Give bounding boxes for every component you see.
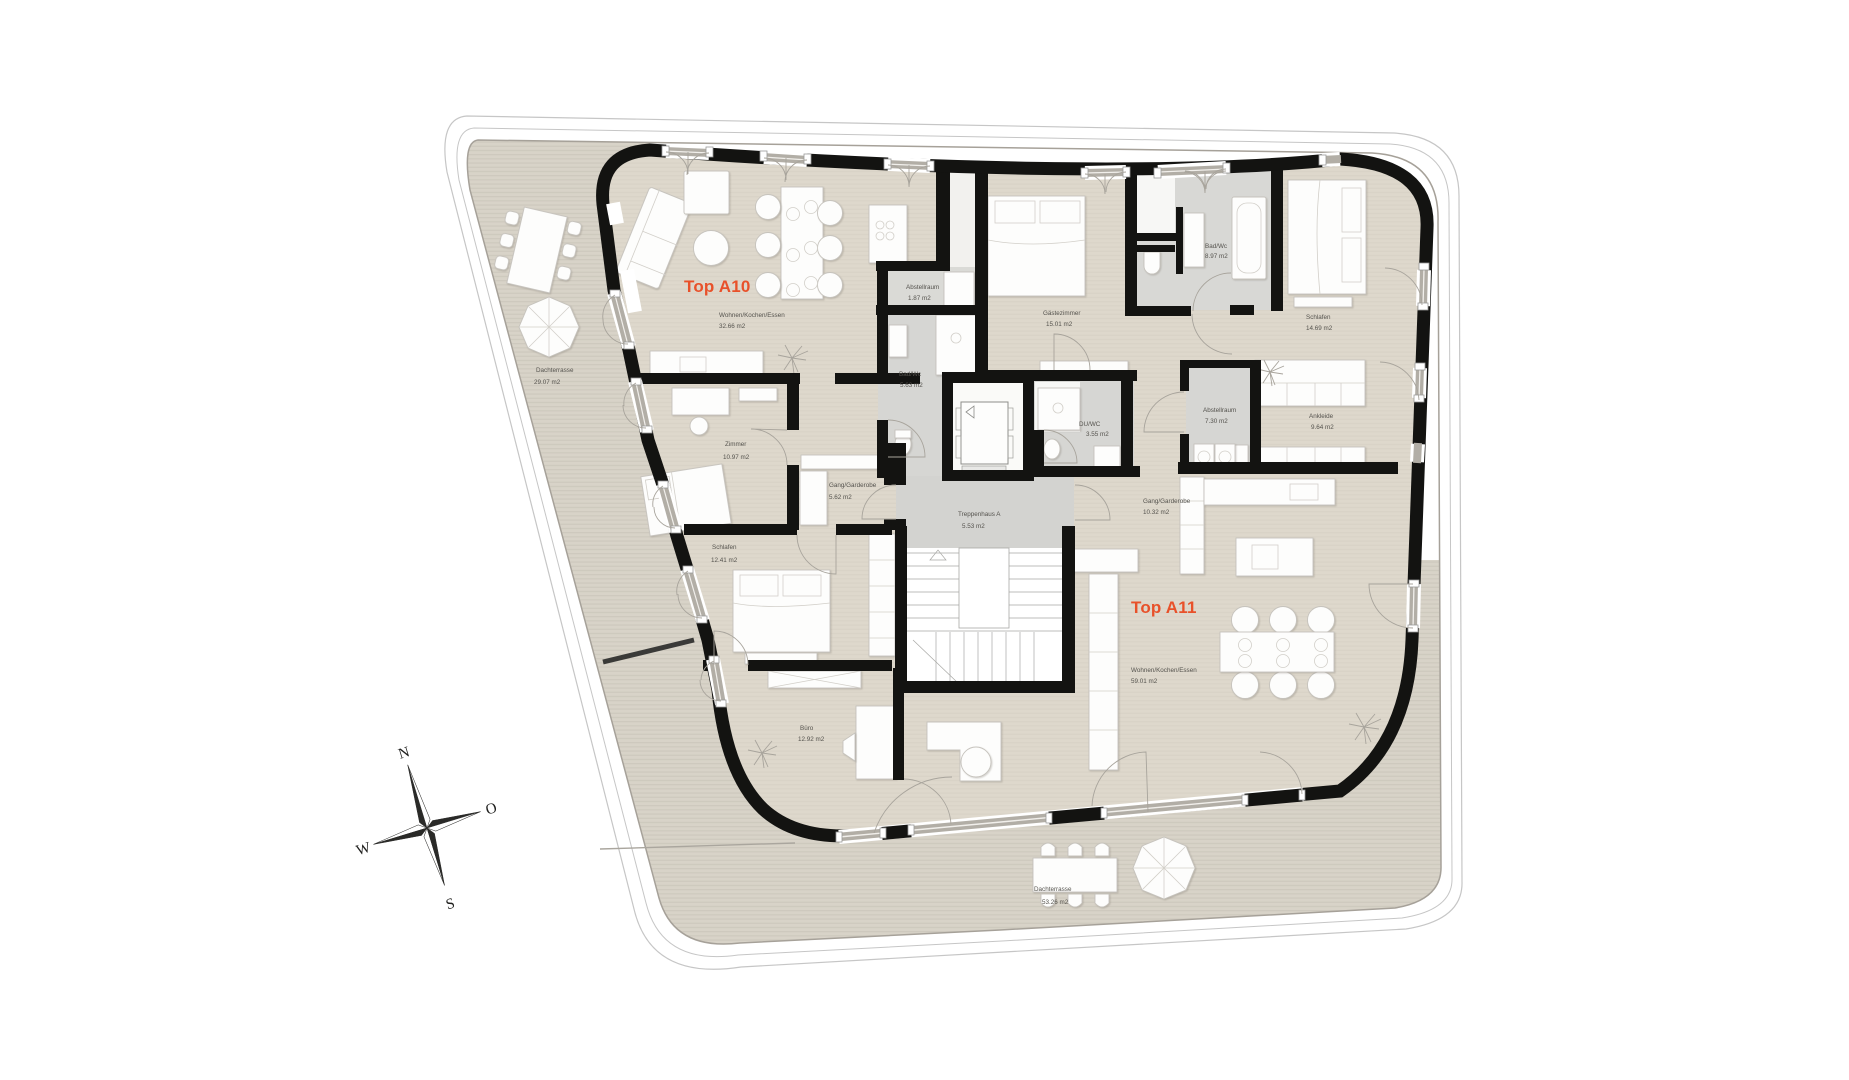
svg-text:3.55 m2: 3.55 m2: [1086, 431, 1109, 438]
svg-text:Dachterrasse: Dachterrasse: [1034, 886, 1072, 893]
svg-text:8.97 m2: 8.97 m2: [1205, 253, 1228, 260]
svg-text:59.01 m2: 59.01 m2: [1131, 678, 1158, 685]
svg-text:Ankleide: Ankleide: [1309, 413, 1334, 420]
svg-text:Zimmer: Zimmer: [725, 441, 746, 448]
svg-text:DU/WC: DU/WC: [1079, 421, 1101, 428]
svg-text:32.66 m2: 32.66 m2: [719, 323, 746, 330]
svg-text:Wohnen/Kochen/Essen: Wohnen/Kochen/Essen: [1131, 667, 1197, 674]
svg-text:Dachterrasse: Dachterrasse: [536, 367, 574, 374]
svg-text:9.64 m2: 9.64 m2: [1311, 424, 1334, 431]
svg-text:Gästezimmer: Gästezimmer: [1043, 310, 1080, 317]
svg-text:29.07 m2: 29.07 m2: [534, 379, 561, 386]
svg-text:Bad/Wc: Bad/Wc: [899, 371, 921, 378]
svg-text:12.41 m2: 12.41 m2: [711, 557, 738, 564]
svg-text:Schlafen: Schlafen: [1306, 314, 1331, 321]
svg-text:N: N: [397, 744, 412, 763]
svg-text:53.26 m2: 53.26 m2: [1042, 899, 1069, 906]
svg-text:W: W: [354, 840, 373, 860]
svg-text:12.92 m2: 12.92 m2: [798, 736, 825, 743]
svg-text:S: S: [444, 896, 457, 914]
svg-text:1.87 m2: 1.87 m2: [908, 295, 931, 302]
svg-text:O: O: [484, 800, 499, 819]
svg-text:Schlafen: Schlafen: [712, 544, 737, 551]
svg-text:Wohnen/Kochen/Essen: Wohnen/Kochen/Essen: [719, 312, 785, 319]
svg-text:Treppenhaus A: Treppenhaus A: [958, 511, 1001, 518]
svg-text:10.97 m2: 10.97 m2: [723, 454, 750, 461]
svg-text:10.32 m2: 10.32 m2: [1143, 509, 1170, 516]
svg-text:7.30 m2: 7.30 m2: [1205, 418, 1228, 425]
svg-text:Bad/Wc: Bad/Wc: [1205, 243, 1227, 250]
svg-text:Abstellraum: Abstellraum: [906, 284, 939, 291]
svg-text:5.53 m2: 5.53 m2: [962, 523, 985, 530]
svg-text:Abstellraum: Abstellraum: [1203, 407, 1236, 414]
svg-text:Gang/Garderobe: Gang/Garderobe: [829, 482, 877, 489]
svg-text:Gang/Garderobe: Gang/Garderobe: [1143, 498, 1191, 505]
svg-text:14.69 m2: 14.69 m2: [1306, 325, 1333, 332]
svg-text:15.01 m2: 15.01 m2: [1046, 321, 1073, 328]
svg-text:5.63 m2: 5.63 m2: [900, 382, 923, 389]
svg-text:Top A11: Top A11: [1131, 598, 1197, 617]
svg-text:Top A10: Top A10: [684, 277, 751, 296]
svg-text:Büro: Büro: [800, 725, 814, 732]
svg-text:5.62 m2: 5.62 m2: [829, 494, 852, 501]
